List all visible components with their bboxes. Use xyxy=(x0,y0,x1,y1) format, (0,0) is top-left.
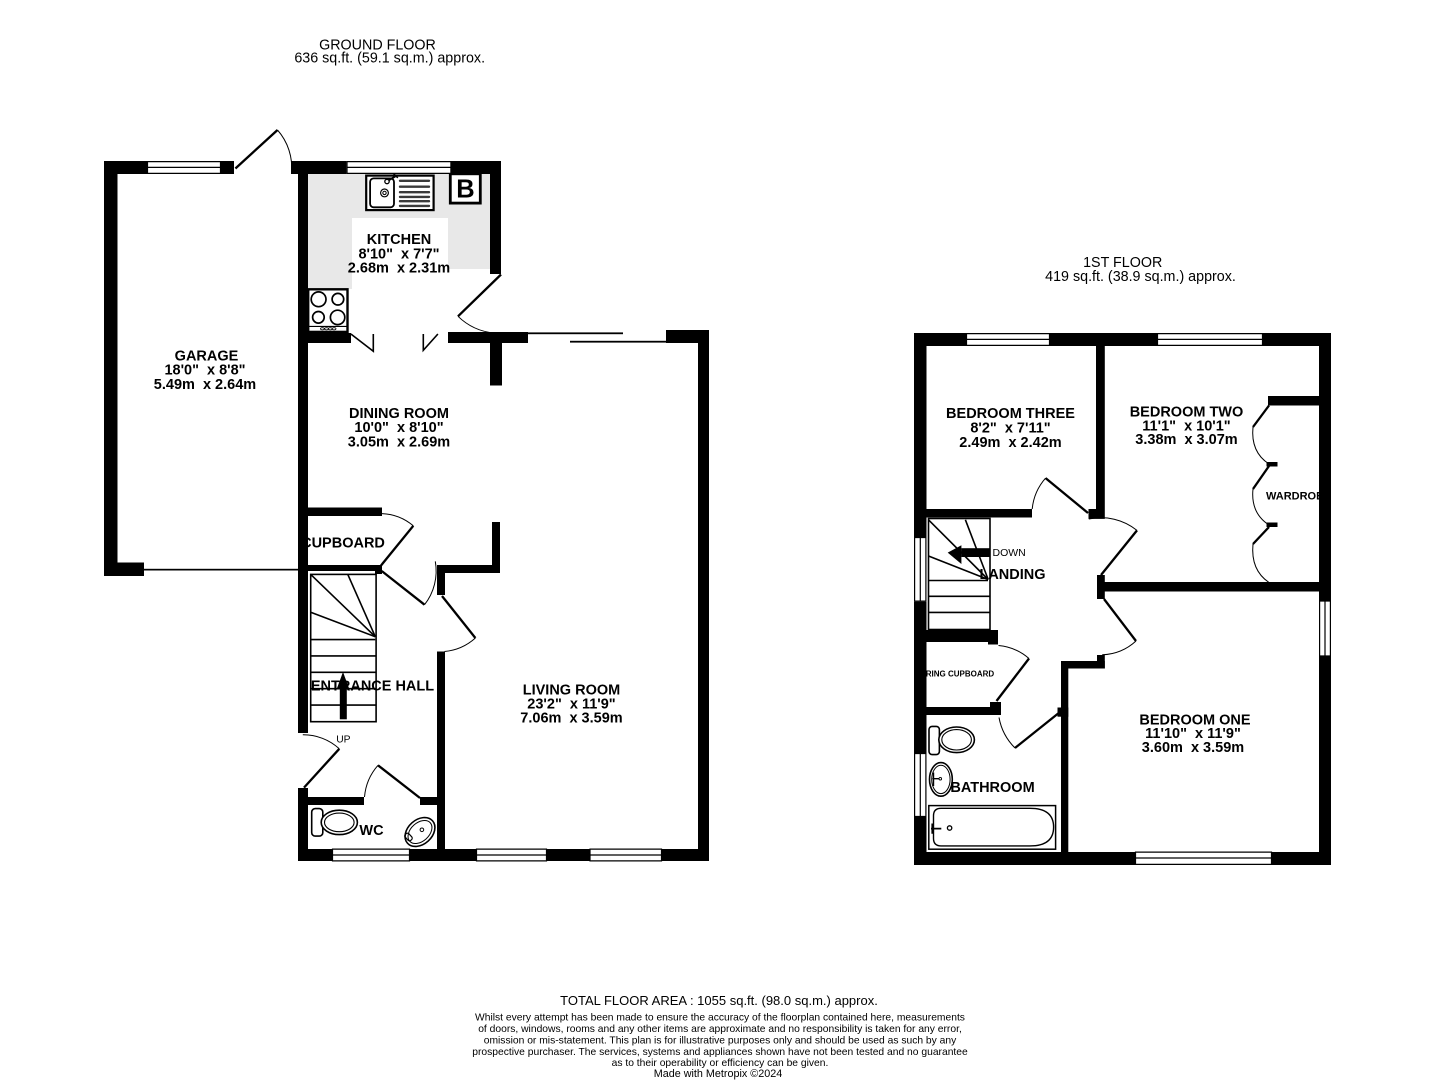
svg-text:DOWN: DOWN xyxy=(993,547,1026,559)
svg-text:UP: UP xyxy=(336,735,350,746)
svg-text:TOTAL FLOOR AREA : 1055 sq.ft.: TOTAL FLOOR AREA : 1055 sq.ft. (98.0 sq.… xyxy=(560,993,878,1008)
svg-text:LANDING: LANDING xyxy=(979,567,1045,583)
svg-text:B: B xyxy=(456,175,474,203)
svg-text:of doors, windows, rooms and a: of doors, windows, rooms and any other i… xyxy=(478,1024,962,1035)
svg-text:Whilst every attempt has been: Whilst every attempt has been made to en… xyxy=(475,1012,965,1023)
svg-text:3.05m x 2.69m: 3.05m x 2.69m xyxy=(348,434,450,450)
svg-text:WARDROBE: WARDROBE xyxy=(1266,491,1331,503)
svg-text:BATHROOM: BATHROOM xyxy=(950,780,1034,796)
svg-text:prospective purchaser. The ser: prospective purchaser. The services, sys… xyxy=(472,1047,968,1058)
svg-text:CUPBOARD: CUPBOARD xyxy=(301,536,385,552)
svg-text:WC: WC xyxy=(359,823,384,839)
svg-text:ENTRANCE HALL: ENTRANCE HALL xyxy=(311,679,434,695)
svg-text:omission or mis-statement. Thi: omission or mis-statement. This plan is … xyxy=(484,1036,957,1047)
svg-text:2.49m x 2.42m: 2.49m x 2.42m xyxy=(959,435,1061,451)
svg-text:636 sq.ft. (59.1 sq.m.) approx: 636 sq.ft. (59.1 sq.m.) approx. xyxy=(294,50,485,66)
svg-text:3.60m x 3.59m: 3.60m x 3.59m xyxy=(1142,740,1244,756)
svg-text:419 sq.ft. (38.9 sq.m.) approx: 419 sq.ft. (38.9 sq.m.) approx. xyxy=(1045,269,1236,285)
svg-text:7.06m x 3.59m: 7.06m x 3.59m xyxy=(520,711,622,727)
svg-text:Made with Metropix ©2024: Made with Metropix ©2024 xyxy=(654,1068,783,1080)
svg-text:5.49m x 2.64m: 5.49m x 2.64m xyxy=(154,377,256,393)
svg-text:AIRING CUPBOARD: AIRING CUPBOARD xyxy=(918,670,995,679)
svg-text:2.68m x 2.31m: 2.68m x 2.31m xyxy=(348,261,450,277)
svg-text:3.38m x 3.07m: 3.38m x 3.07m xyxy=(1135,432,1237,448)
